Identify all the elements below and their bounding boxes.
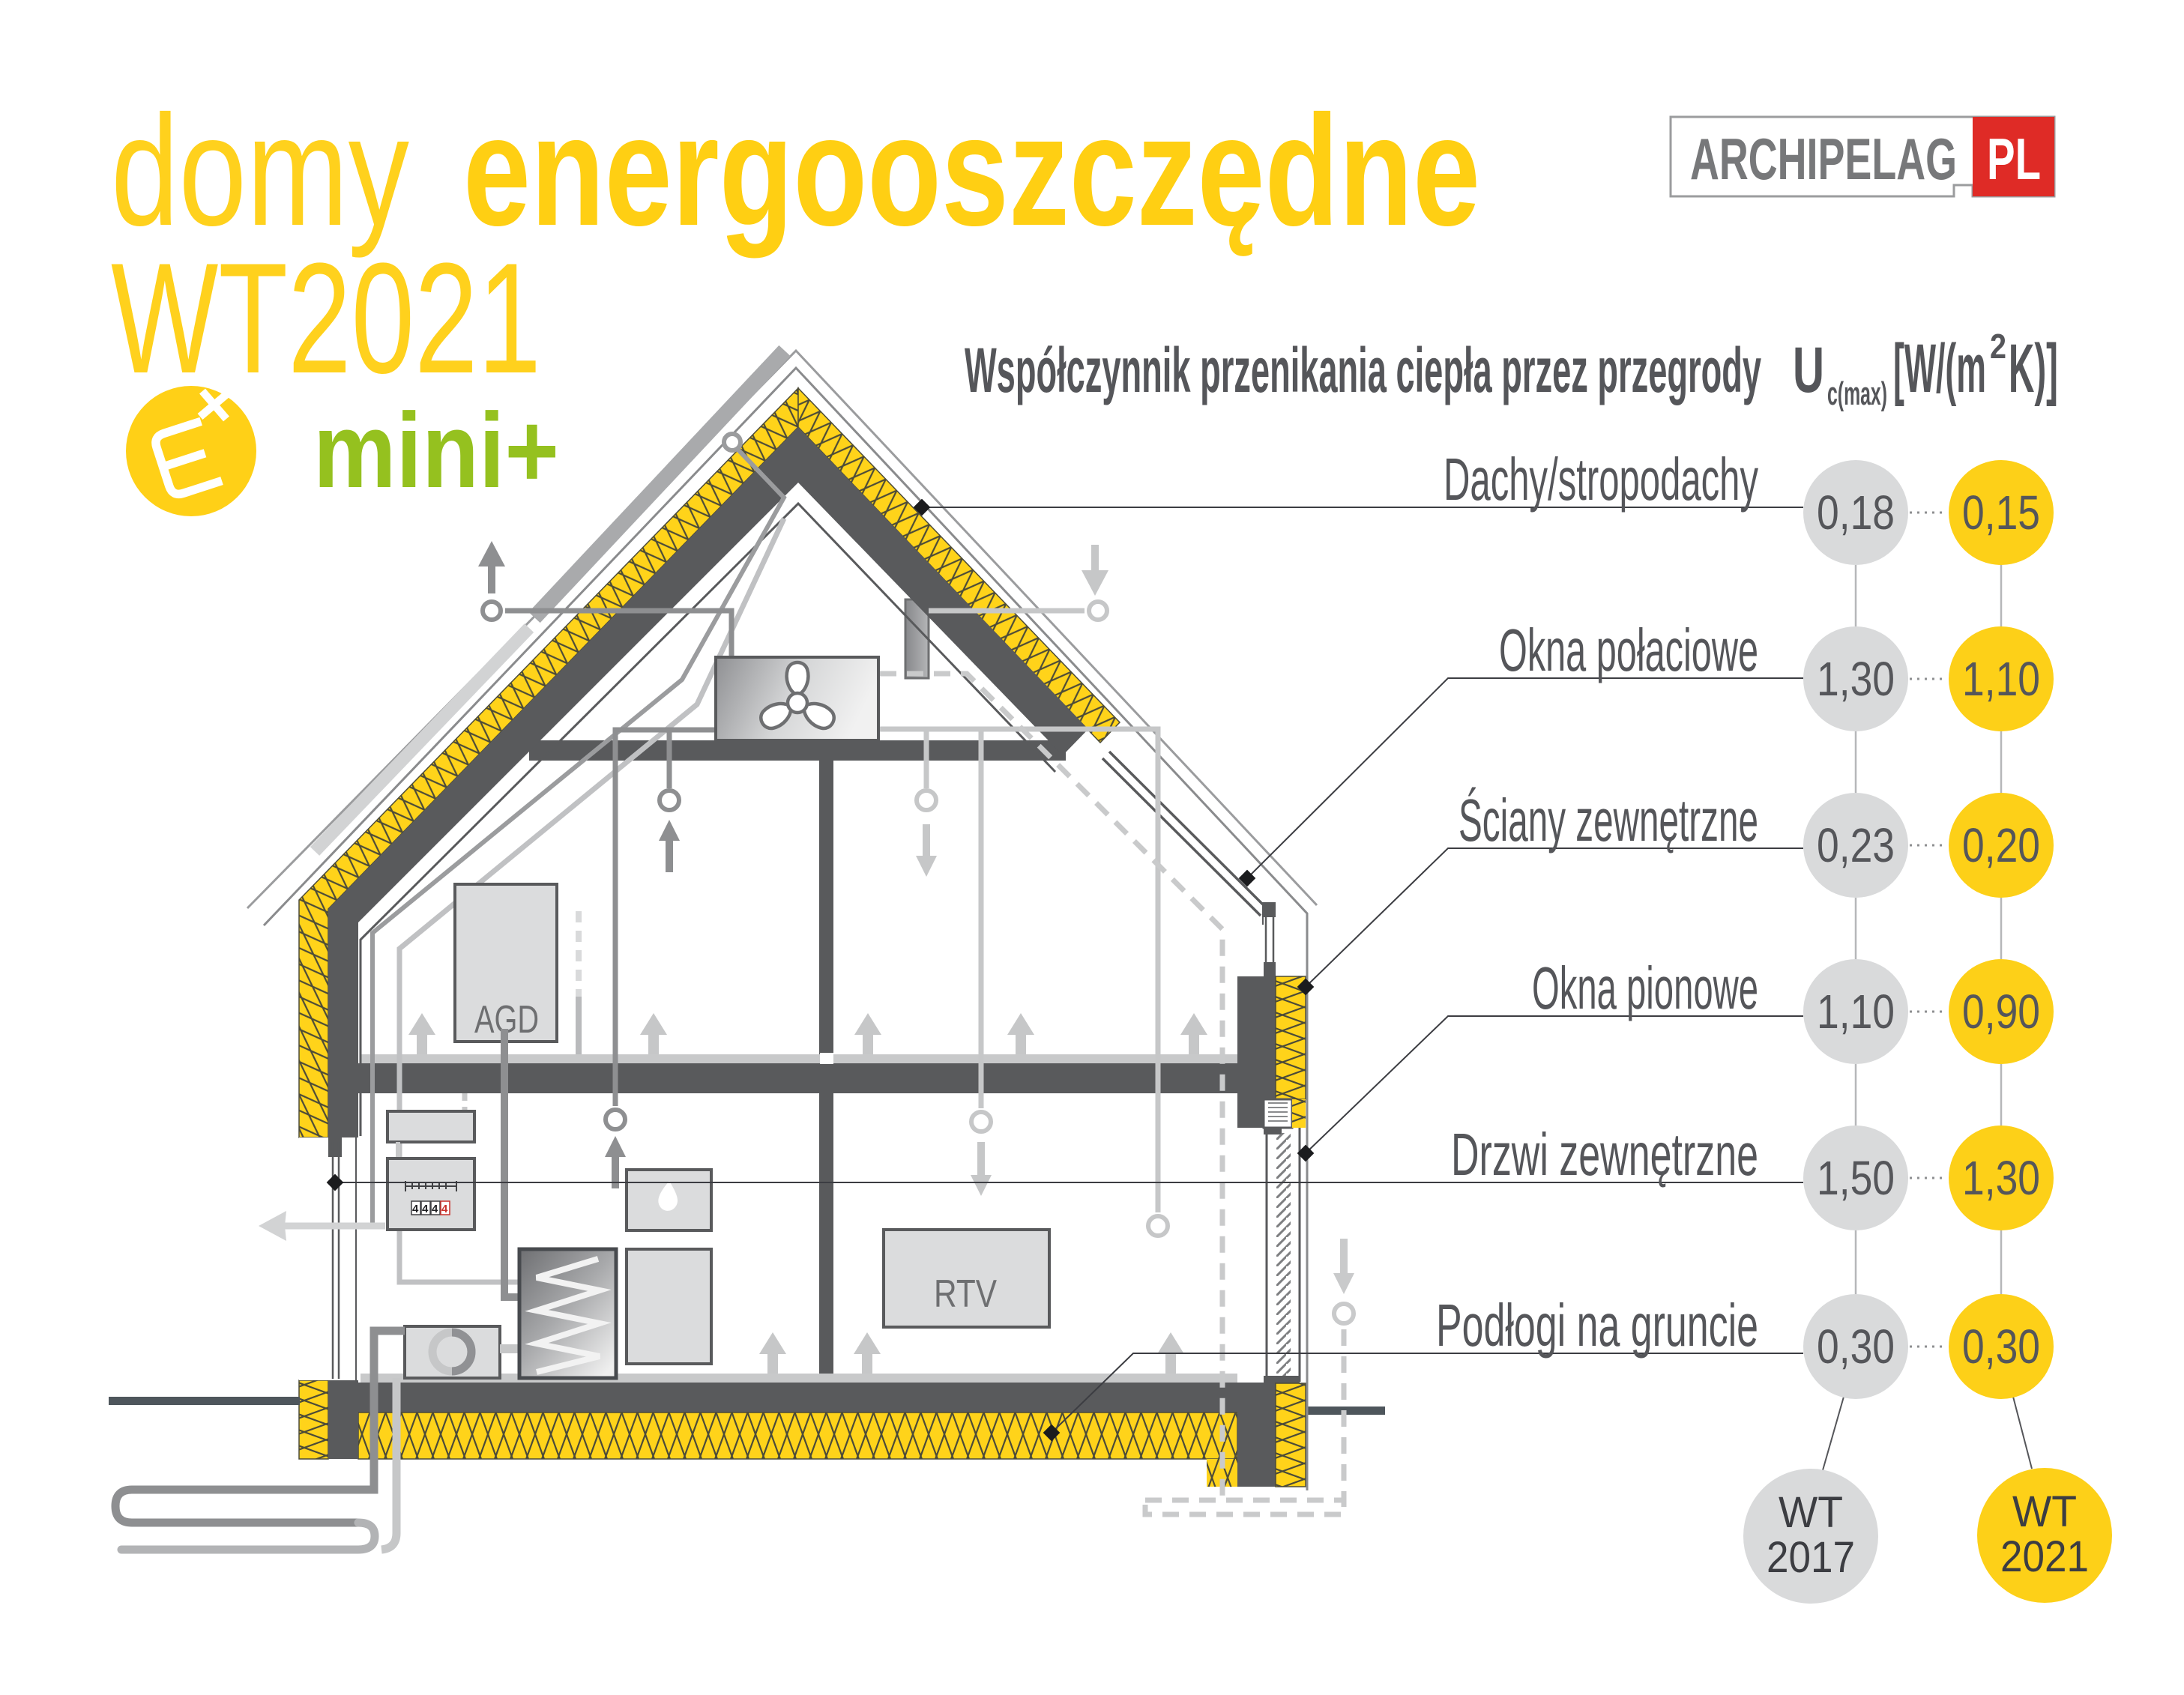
svg-text:0,90: 0,90 bbox=[1962, 985, 2040, 1039]
svg-text:0,20: 0,20 bbox=[1962, 818, 2040, 872]
svg-text:U: U bbox=[1793, 334, 1824, 406]
svg-text:0,30: 0,30 bbox=[1817, 1320, 1895, 1374]
svg-text:1,30: 1,30 bbox=[1817, 652, 1895, 706]
svg-text:Ściany zewnętrzne: Ściany zewnętrzne bbox=[1458, 787, 1758, 853]
svg-text:2017: 2017 bbox=[1767, 1533, 1855, 1582]
svg-text:0,18: 0,18 bbox=[1817, 486, 1895, 540]
svg-text:1,10: 1,10 bbox=[1962, 652, 2040, 706]
svg-text:4: 4 bbox=[432, 1203, 438, 1215]
svg-text:WT2021: WT2021 bbox=[111, 230, 541, 406]
svg-text:Okna pionowe: Okna pionowe bbox=[1532, 955, 1758, 1021]
svg-text:1,30: 1,30 bbox=[1962, 1151, 2040, 1205]
svg-text:[W/(m: [W/(m bbox=[1893, 330, 1986, 407]
svg-text:Okna połaciowe: Okna połaciowe bbox=[1499, 617, 1758, 683]
svg-text:WT: WT bbox=[2012, 1487, 2077, 1536]
svg-text:mini+: mini+ bbox=[313, 391, 559, 510]
svg-text:Drzwi zewnętrzne: Drzwi zewnętrzne bbox=[1451, 1121, 1758, 1188]
svg-text:Dachy/stropodachy: Dachy/stropodachy bbox=[1444, 446, 1758, 513]
svg-text:0,23: 0,23 bbox=[1817, 818, 1895, 872]
svg-text:energooszczędne: energooszczędne bbox=[463, 82, 1480, 259]
svg-text:c(max): c(max) bbox=[1827, 375, 1887, 412]
svg-text:4: 4 bbox=[441, 1203, 448, 1215]
svg-text:4: 4 bbox=[412, 1203, 419, 1215]
svg-text:0,15: 0,15 bbox=[1962, 486, 2040, 540]
svg-text:K)]: K)] bbox=[2009, 330, 2058, 407]
svg-text:WT: WT bbox=[1779, 1488, 1843, 1537]
svg-text:2: 2 bbox=[1990, 327, 2006, 366]
svg-text:1,10: 1,10 bbox=[1817, 985, 1895, 1039]
svg-text:ARCHIPELAG: ARCHIPELAG bbox=[1690, 126, 1957, 192]
svg-text:4: 4 bbox=[422, 1203, 429, 1215]
svg-text:Współczynnik przenikania ciepł: Współczynnik przenikania ciepła przez pr… bbox=[965, 335, 1761, 405]
svg-text:PL: PL bbox=[1987, 126, 2041, 192]
svg-text:1,50: 1,50 bbox=[1817, 1151, 1895, 1205]
svg-text:2021: 2021 bbox=[2000, 1532, 2089, 1581]
svg-text:Podłogi na gruncie: Podłogi na gruncie bbox=[1436, 1292, 1758, 1359]
svg-text:0,30: 0,30 bbox=[1962, 1320, 2040, 1374]
svg-text:RTV: RTV bbox=[934, 1272, 997, 1316]
